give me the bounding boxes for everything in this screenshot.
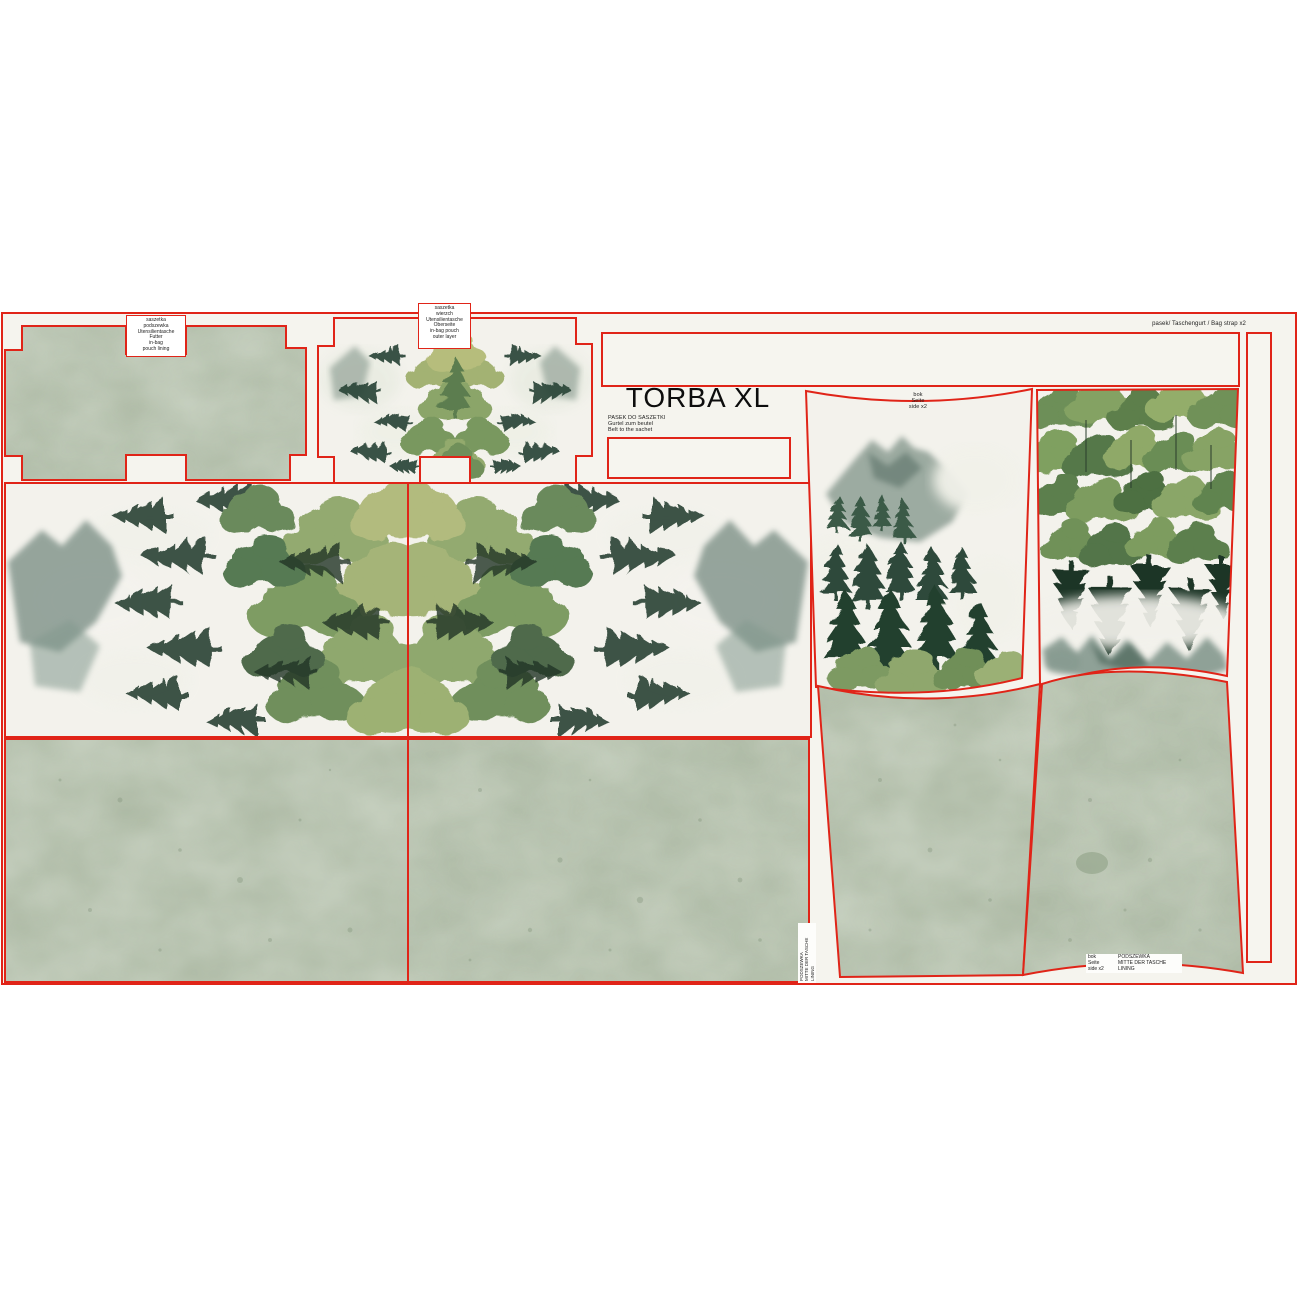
label-lining-vertical: PODSZEWKA MITTE DER TASCHE LINING bbox=[798, 923, 816, 983]
label-line: side x2 bbox=[894, 404, 942, 410]
piece-main-lining-right bbox=[408, 739, 809, 982]
piece-side-front-left bbox=[805, 389, 1037, 702]
fabric-panel-sheet: saszetka podszewka Utensilientasche Futt… bbox=[0, 0, 1300, 1300]
piece-belt-strip bbox=[608, 438, 790, 478]
piece-edge-strip bbox=[1247, 333, 1271, 962]
label-line: pouch lining bbox=[127, 347, 185, 353]
label-bag-strap: pasek/ Taschengurt / Bag strap x2 bbox=[1050, 321, 1246, 327]
piece-side-front-right bbox=[1023, 376, 1256, 687]
label-line: LINING bbox=[810, 925, 815, 981]
label-pouch-lining: saszetka podszewka Utensilientasche Futt… bbox=[126, 315, 186, 357]
label-side: bok Seite side x2 bbox=[894, 392, 942, 411]
piece-bag-strap bbox=[602, 333, 1239, 386]
piece-side-lining-right bbox=[1020, 658, 1246, 980]
label-cell: side x2 bbox=[1088, 967, 1114, 973]
label-line: outer layer bbox=[419, 335, 470, 341]
piece-main-lining-left bbox=[5, 739, 408, 982]
label-belt: PASEK DO SASZETKI Gurtel zum beutel Belt… bbox=[608, 415, 666, 434]
panel-graphics bbox=[0, 0, 1300, 1300]
label-pouch-outer: saszetka wierzch Utensilientasche Oberse… bbox=[418, 303, 471, 349]
label-lining-table: bok PODSZEWKA Seite MITTE DER TASCHE sid… bbox=[1086, 954, 1182, 973]
label-cell: LINING bbox=[1118, 967, 1180, 973]
piece-side-lining-left bbox=[815, 660, 1045, 980]
label-line: Belt to the sachet bbox=[608, 427, 666, 433]
panel-title: TORBA XL bbox=[600, 382, 796, 414]
